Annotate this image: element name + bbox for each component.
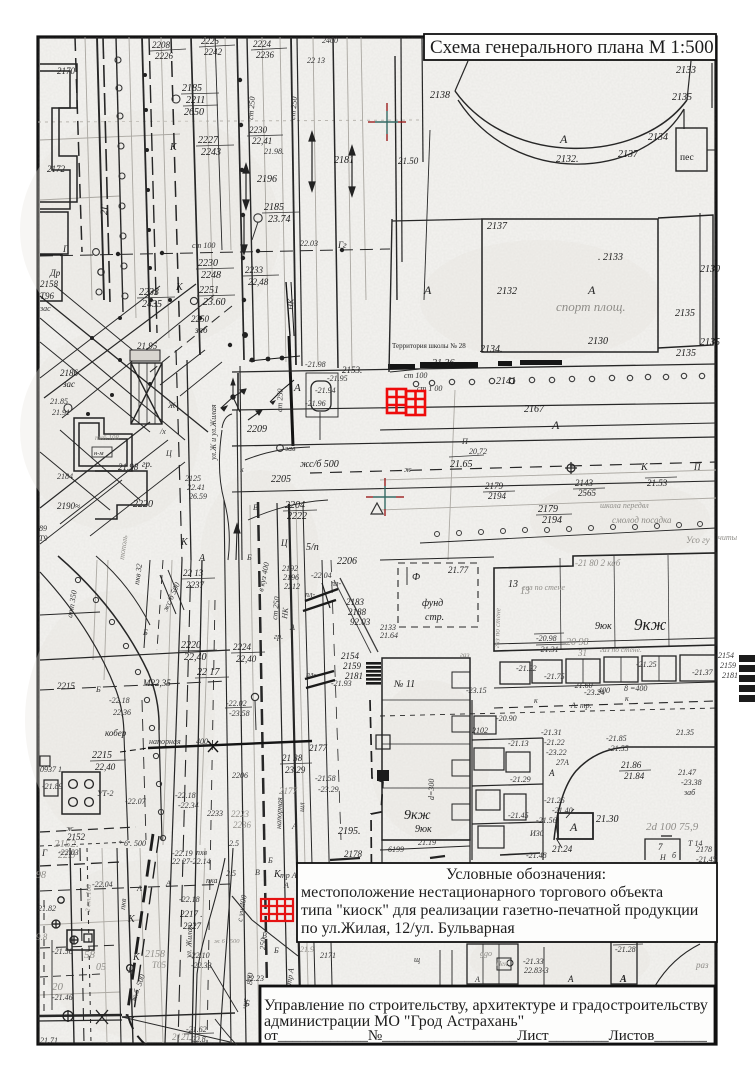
svg-text:2167: 2167 [524,404,545,415]
svg-text:2130: 2130 [700,264,720,275]
svg-text:9кж: 9кж [634,615,666,634]
svg-text:27А: 27А [556,758,569,767]
svg-text:НК: НК [280,607,290,621]
svg-text:2132: 2132 [497,286,517,297]
svg-text:2133: 2133 [676,65,696,76]
svg-text:-21.22: -21.22 [544,738,565,747]
svg-text:2650: 2650 [184,107,204,118]
svg-text:2217 .: 2217 . [180,909,203,919]
svg-text:8 =400: 8 =400 [624,684,647,693]
svg-text:2220: 2220 [181,640,201,651]
svg-text:2435: 2435 [142,299,162,310]
svg-text:пл-: пл- [305,590,315,599]
svg-text:2179: 2179 [485,481,504,491]
svg-text:2141: 2141 [496,376,516,387]
svg-text:2171: 2171 [320,951,336,960]
svg-text:2143: 2143 [575,478,594,488]
svg-text:-23.15: -23.15 [466,686,487,695]
svg-text:А: А [293,382,301,394]
svg-text:400: 400 [598,686,610,695]
svg-text:-22.18: -22.18 [175,791,196,800]
svg-text:Г: Г [41,848,48,858]
svg-text:А: А [587,283,596,297]
svg-text:2135: 2135 [700,337,720,348]
svg-text:Ж: Ж [167,401,176,410]
svg-text:6199: 6199 [388,845,404,854]
svg-text:от____________№_______________: от____________№__________________Лист___… [264,1028,707,1044]
svg-text:2208: 2208 [152,40,171,50]
svg-text:к: к [240,465,244,474]
svg-text:2185: 2185 [264,202,284,213]
svg-text:21.30: 21.30 [596,814,619,825]
svg-text:2179: 2179 [538,504,558,515]
svg-text:-21.89: -21.89 [42,782,63,791]
svg-text:58: 58 [84,949,96,961]
svg-text:А: А [567,974,574,984]
svg-text:н-м: н-м [94,450,104,457]
svg-text:05: 05 [96,962,106,973]
svg-text:2206: 2206 [232,771,248,780]
svg-text:5/п: 5/п [306,542,319,553]
svg-text:2135: 2135 [675,308,695,319]
svg-text:-21.58: -21.58 [315,774,336,783]
svg-text:Условные обозначения:: Условные обозначения: [446,866,606,883]
svg-text:П: П [693,462,701,472]
svg-text:2159: 2159 [720,661,736,670]
svg-text:-22.03: -22.03 [58,848,79,857]
svg-text:кобер: кобер [105,728,127,738]
svg-text:2248: 2248 [201,270,221,281]
svg-text:22 13: 22 13 [307,56,325,65]
svg-text:2220: 2220 [133,499,153,510]
svg-text:-22.10: -22.10 [189,951,210,960]
svg-text:жс/б 500: жс/б 500 [300,459,339,470]
svg-text:2185: 2185 [182,83,202,94]
svg-text:21 36: 21 36 [432,358,455,369]
svg-text:А: А [559,132,568,146]
svg-text:зав: зав [284,444,296,453]
svg-text:-22.04: -22.04 [311,571,332,580]
svg-text:22 13: 22 13 [183,568,204,578]
svg-text:22,41: 22,41 [252,136,272,146]
svg-text:22,36: 22,36 [113,708,131,717]
svg-text:2233: 2233 [245,265,264,275]
svg-text:2242: 2242 [204,47,223,57]
svg-text:А: А [548,768,555,778]
svg-text:Б: Б [267,856,273,865]
svg-text:2154: 2154 [718,651,734,660]
svg-text:-20.98: -20.98 [536,634,557,643]
svg-text:2211: 2211 [186,95,205,106]
svg-text:№ 11: № 11 [393,679,415,690]
svg-text:2204: 2204 [285,500,305,511]
svg-text:Ф: Ф [412,572,420,583]
svg-text:2134.: 2134. [480,344,503,355]
svg-text:УТ-2: УТ-2 [97,789,114,798]
svg-text:раз: раз [695,960,709,970]
svg-text:/х: /х [159,427,166,436]
svg-text:-21.26: -21.26 [544,796,565,805]
svg-text:21.47: 21.47 [678,768,697,777]
svg-text:21.86: 21.86 [621,760,642,770]
svg-text:2565: 2565 [578,488,597,498]
svg-text:А: А [136,884,142,893]
svg-text:ж: ж [66,824,74,833]
svg-text:2154: 2154 [341,651,360,661]
svg-text:2130: 2130 [588,336,608,347]
svg-text:Б: Б [95,685,101,694]
svg-text:2134: 2134 [648,132,668,143]
svg-text:2236: 2236 [233,820,252,830]
svg-text:2137: 2137 [618,149,639,160]
svg-text:98: 98 [36,870,46,881]
svg-text:21.50: 21.50 [398,156,419,166]
svg-text:Г: Г [62,244,69,254]
svg-text:М22,35: М22,35 [142,678,171,688]
svg-text:-21.96: -21.96 [305,399,326,408]
svg-text:21.71: 21.71 [40,1036,58,1045]
svg-text:А. тр.: А. тр. [570,701,592,710]
svg-text:2.5: 2.5 [226,869,236,878]
svg-text:читы: читы [718,533,738,542]
svg-text:-21.37: -21.37 [692,668,714,677]
svg-text:21.77: 21.77 [448,565,469,575]
svg-text:А: А [569,820,578,834]
svg-text:Усо гу: Усо гу [686,535,710,545]
svg-text:ст 100: ст 100 [192,241,215,250]
svg-text:21.84: 21.84 [624,771,645,781]
svg-text:d=300: d=300 [427,779,436,800]
svg-text:ул.Ж и ул.Жилая: ул.Ж и ул.Жилая [209,404,218,461]
svg-text:0937 1: 0937 1 [40,765,62,774]
svg-text:-21.31: -21.31 [538,645,559,654]
svg-text:-21.33: -21.33 [523,957,544,966]
svg-text:2178: 2178 [696,845,712,854]
svg-text:13: 13 [508,579,518,590]
svg-text:2227: 2227 [198,135,219,146]
svg-text:-21 80 2 каб: -21 80 2 каб [575,558,621,568]
svg-text:2212: 2212 [284,582,300,591]
svg-text:щ: щ [414,955,420,964]
svg-text:2159: 2159 [343,661,362,671]
svg-text:2227: 2227 [183,921,202,931]
svg-text:Б: Б [244,999,250,1008]
svg-text:напорная: напорная [149,737,181,746]
svg-text:9.8: 9.8 [36,932,48,942]
svg-text:7: 7 [658,842,663,852]
svg-text:2.5: 2.5 [229,839,239,848]
svg-text:В: В [255,868,260,877]
svg-text:ст 100: ст 100 [404,371,427,380]
svg-text:-23.22: -23.22 [546,748,567,757]
svg-text:21.9: 21.9 [300,945,314,954]
svg-text:2243: 2243 [201,147,221,158]
svg-text:Т96: Т96 [40,291,55,301]
svg-text:2205: 2205 [271,474,291,485]
svg-text:2138: 2138 [430,90,450,101]
svg-text:2158: 2158 [145,949,165,960]
svg-text:Схема генерального плана М 1:5: Схема генерального плана М 1:500 [430,37,714,58]
svg-text:2250: 2250 [191,314,210,324]
svg-text:-20.90: -20.90 [496,714,517,723]
svg-text:ggo: ggo [480,949,492,958]
svg-text:22,40: 22,40 [95,762,116,772]
svg-text:22.23: 22.23 [246,974,264,983]
svg-text:шл: шл [297,802,306,812]
svg-text:2226: 2226 [155,51,174,61]
svg-text:26.59: 26.59 [189,492,207,501]
svg-text:газ по стене.: газ по стене. [600,645,642,654]
svg-text:22,40: 22,40 [184,652,207,663]
svg-text:22,48: 22,48 [248,277,269,287]
svg-text:-22.04: -22.04 [92,880,113,889]
svg-text:гр.: гр. [274,632,283,641]
svg-text:21.64: 21.64 [380,631,398,640]
svg-text:22,40: 22,40 [236,654,257,664]
svg-text:Гг: Гг [337,240,347,250]
svg-text:21.98.: 21.98. [264,147,284,156]
svg-text:НК: НК [286,298,295,311]
svg-text:И30: И30 [529,829,544,838]
svg-text:2196: 2196 [257,174,277,185]
svg-text:2196: 2196 [283,573,299,582]
svg-text:-23.38: -23.38 [681,778,702,787]
svg-text:А: А [289,623,295,632]
svg-text:Б: Б [142,628,148,637]
svg-text:22.03: 22.03 [300,239,318,248]
svg-text:пкв: пкв [118,898,128,911]
svg-text:-21.95: -21.95 [327,374,348,383]
svg-text:Др: Др [49,268,61,278]
svg-text:к: к [534,696,538,705]
svg-text:-21.98: -21.98 [305,360,326,369]
svg-text:ж: ж [404,465,412,474]
svg-text:Управление по строительству, а: Управление по строительству, архитектуре… [264,997,708,1014]
svg-text:9кж: 9кж [404,808,431,823]
svg-text:А: А [165,879,171,888]
svg-text:21.65: 21.65 [450,459,473,470]
svg-text:400: 400 [196,737,208,746]
svg-text:2170: 2170 [57,66,76,76]
svg-text:2233: 2233 [139,287,159,298]
svg-text:-21.56: -21.56 [536,816,557,825]
svg-text:Территория школы № 28: Территория школы № 28 [392,342,466,350]
svg-text:2230: 2230 [249,125,268,135]
svg-text:смолод посадка: смолод посадка [612,515,672,525]
svg-text:2137: 2137 [487,221,508,232]
svg-text:-21.75: -21.75 [544,672,565,681]
svg-text:2222: 2222 [287,511,307,522]
svg-text:23.60: 23.60 [203,297,226,308]
svg-text:А: А [619,974,627,985]
svg-text:-21.22: -21.22 [516,664,537,673]
svg-text:В: В [253,503,258,512]
svg-text:2177: 2177 [309,743,328,753]
svg-text:2225: 2225 [201,36,220,46]
svg-text:92.03: 92.03 [350,617,371,627]
svg-text:2158: 2158 [40,279,59,289]
svg-text:школа передвл: школа передвл [600,501,649,510]
svg-text:2236: 2236 [256,50,275,60]
svg-text:ст 250: ст 250 [275,388,285,412]
svg-text:-21.94: -21.94 [315,386,336,395]
svg-text:23.29: 23.29 [285,765,306,775]
svg-text:В: В [262,931,267,940]
svg-text:2224: 2224 [233,642,252,652]
svg-text:-21.31: -21.31 [541,728,562,737]
svg-text:2172: 2172 [47,164,66,174]
svg-text:-22.18: -22.18 [109,696,130,705]
svg-text:заб: заб [194,325,208,335]
svg-text:Пен: Пен [495,960,508,968]
svg-text:2181: 2181 [722,671,738,680]
svg-text:2237: 2237 [186,580,205,590]
svg-text:-22.33: -22.33 [191,961,212,970]
svg-text:2194: 2194 [542,515,562,526]
svg-text:местоположение нестационарного: местоположение нестационарного торгового… [301,884,663,901]
svg-text:-21.25: -21.25 [636,660,657,669]
svg-text:89: 89 [39,524,47,533]
svg-text:-21.93: -21.93 [331,679,352,688]
svg-text:22.83-3: 22.83-3 [524,966,549,975]
svg-text:21.95: 21.95 [137,341,158,351]
svg-text:Б: Б [273,946,279,955]
svg-text:2215: 2215 [57,681,76,691]
svg-text:2195.: 2195. [338,826,361,837]
svg-text:гр.: гр. [142,459,152,469]
svg-text:А: А [474,975,480,984]
svg-text:-23.29: -23.29 [318,785,339,794]
svg-text:2135: 2135 [672,92,692,103]
svg-text:2188: 2188 [348,607,367,617]
svg-text:фунд: фунд [422,598,443,609]
svg-text:22 17: 22 17 [197,667,221,678]
svg-text:тр А: тр А [280,871,297,880]
svg-text:-21.55: -21.55 [608,744,629,753]
svg-text:2192: 2192 [282,564,298,573]
svg-text:2d 100 75,9: 2d 100 75,9 [646,821,699,833]
svg-text:2184: 2184 [57,472,73,481]
svg-text:2177: 2177 [279,786,298,796]
svg-text:газ: газ [460,650,470,659]
svg-text:стр.: стр. [425,612,444,623]
svg-text:23.74: 23.74 [268,214,291,225]
svg-text:22.41: 22.41 [187,483,205,492]
svg-text:пхв: пхв [196,848,208,857]
svg-text:типа "киоск" для реализации га: типа "киоск" для реализации газетно-печа… [301,902,699,919]
svg-text:зас: зас [62,379,75,389]
svg-text:2223: 2223 [231,809,250,819]
svg-text:2233: 2233 [207,809,223,818]
svg-text:Б: Б [246,553,252,562]
svg-text:21.35: 21.35 [676,728,694,737]
svg-text:по ул.Жилая, 12/ул. Бульварная: по ул.Жилая, 12/ул. Бульварная [301,920,515,937]
svg-text:2215: 2215 [92,750,112,761]
svg-text:9юк: 9юк [595,621,612,632]
svg-text:2183: 2183 [346,597,365,607]
svg-text:2Г: 2Г [99,204,110,215]
svg-text:пл-: пл- [306,670,316,679]
svg-text:2135: 2135 [676,348,696,359]
svg-text:21.91: 21.91 [52,408,70,417]
svg-text:2230: 2230 [198,258,218,269]
svg-text:пха: пха [206,876,217,885]
svg-text:к: к [625,694,629,703]
svg-text:2224: 2224 [253,39,272,49]
svg-text:2194: 2194 [488,491,507,501]
svg-text:-22.07: -22.07 [125,797,147,806]
svg-text:Т05: Т05 [152,960,167,970]
svg-text:А: А [198,553,206,564]
svg-text:20: 20 [52,981,64,993]
svg-text:2125: 2125 [185,474,201,483]
svg-text:ж 6 . 500: ж 6 . 500 [214,938,240,945]
svg-text:ткб.108: ткб.108 [95,434,119,442]
svg-text:-22.18: -22.18 [179,895,200,904]
svg-text:20,72: 20,72 [469,447,487,456]
svg-text:-22.02: -22.02 [226,699,247,708]
svg-text:2400: 2400 [322,36,338,45]
svg-text:* 6 . 500: * 6 . 500 [118,839,146,848]
svg-text:-21.56: -21.56 [52,947,73,956]
svg-text:2206: 2206 [337,556,357,567]
svg-text:-21.29: -21.29 [510,775,531,784]
svg-text:-21.13: -21.13 [508,739,529,748]
svg-text:31: 31 [577,648,587,658]
svg-text:А: А [551,418,560,432]
svg-text:2132.: 2132. [556,154,579,165]
svg-text:2190≈: 2190≈ [57,501,80,511]
svg-text:-21.45: -21.45 [508,811,529,820]
svg-text:-23.58: -23.58 [229,709,250,718]
svg-text:А: А [423,283,432,297]
svg-text:-21.85: -21.85 [606,734,627,743]
svg-text:21.53: 21.53 [647,478,668,488]
svg-text:газ по стене: газ по стене [492,607,502,648]
svg-text:2181: 2181 [334,155,354,166]
svg-text:-22.34: -22.34 [178,801,199,810]
svg-text:2209: 2209 [247,424,267,435]
svg-text:А: А [283,881,289,890]
svg-text:21.82: 21.82 [38,904,56,913]
svg-text:Ц: Ц [280,538,288,548]
svg-text:-21.40: -21.40 [552,806,573,815]
svg-text:2251: 2251 [199,285,219,296]
svg-text:21.98: 21.98 [118,462,139,472]
svg-text:2186: 2186 [60,368,79,378]
svg-text:пл-: пл- [331,579,341,588]
svg-text:пес: пес [680,153,694,163]
svg-text:9юк: 9юк [415,824,432,835]
svg-text:-21.28: -21.28 [615,945,636,954]
svg-text:напорная: напорная [274,797,284,829]
svg-text:-21.62: -21.62 [186,1025,207,1034]
svg-text:20 98: 20 98 [566,637,589,648]
svg-text:-22.8: -22.8 [189,1035,206,1044]
svg-text:спорт площ.: спорт площ. [556,299,626,314]
svg-text:А: А [291,822,297,831]
svg-text:заб: заб [683,788,696,797]
svg-text:21.19: 21.19 [418,838,436,847]
svg-text:. 2133: . 2133 [598,252,623,263]
svg-text:22 27-22.14: 22 27-22.14 [172,857,211,866]
svg-text:зас: зас [39,304,51,313]
svg-text:21 38: 21 38 [282,753,303,763]
svg-text:Т9: Т9 [39,534,47,543]
svg-text:2178: 2178 [344,849,363,859]
svg-text:2152: 2152 [67,832,86,842]
svg-text:еаз по стене: еаз по стене [522,583,565,592]
